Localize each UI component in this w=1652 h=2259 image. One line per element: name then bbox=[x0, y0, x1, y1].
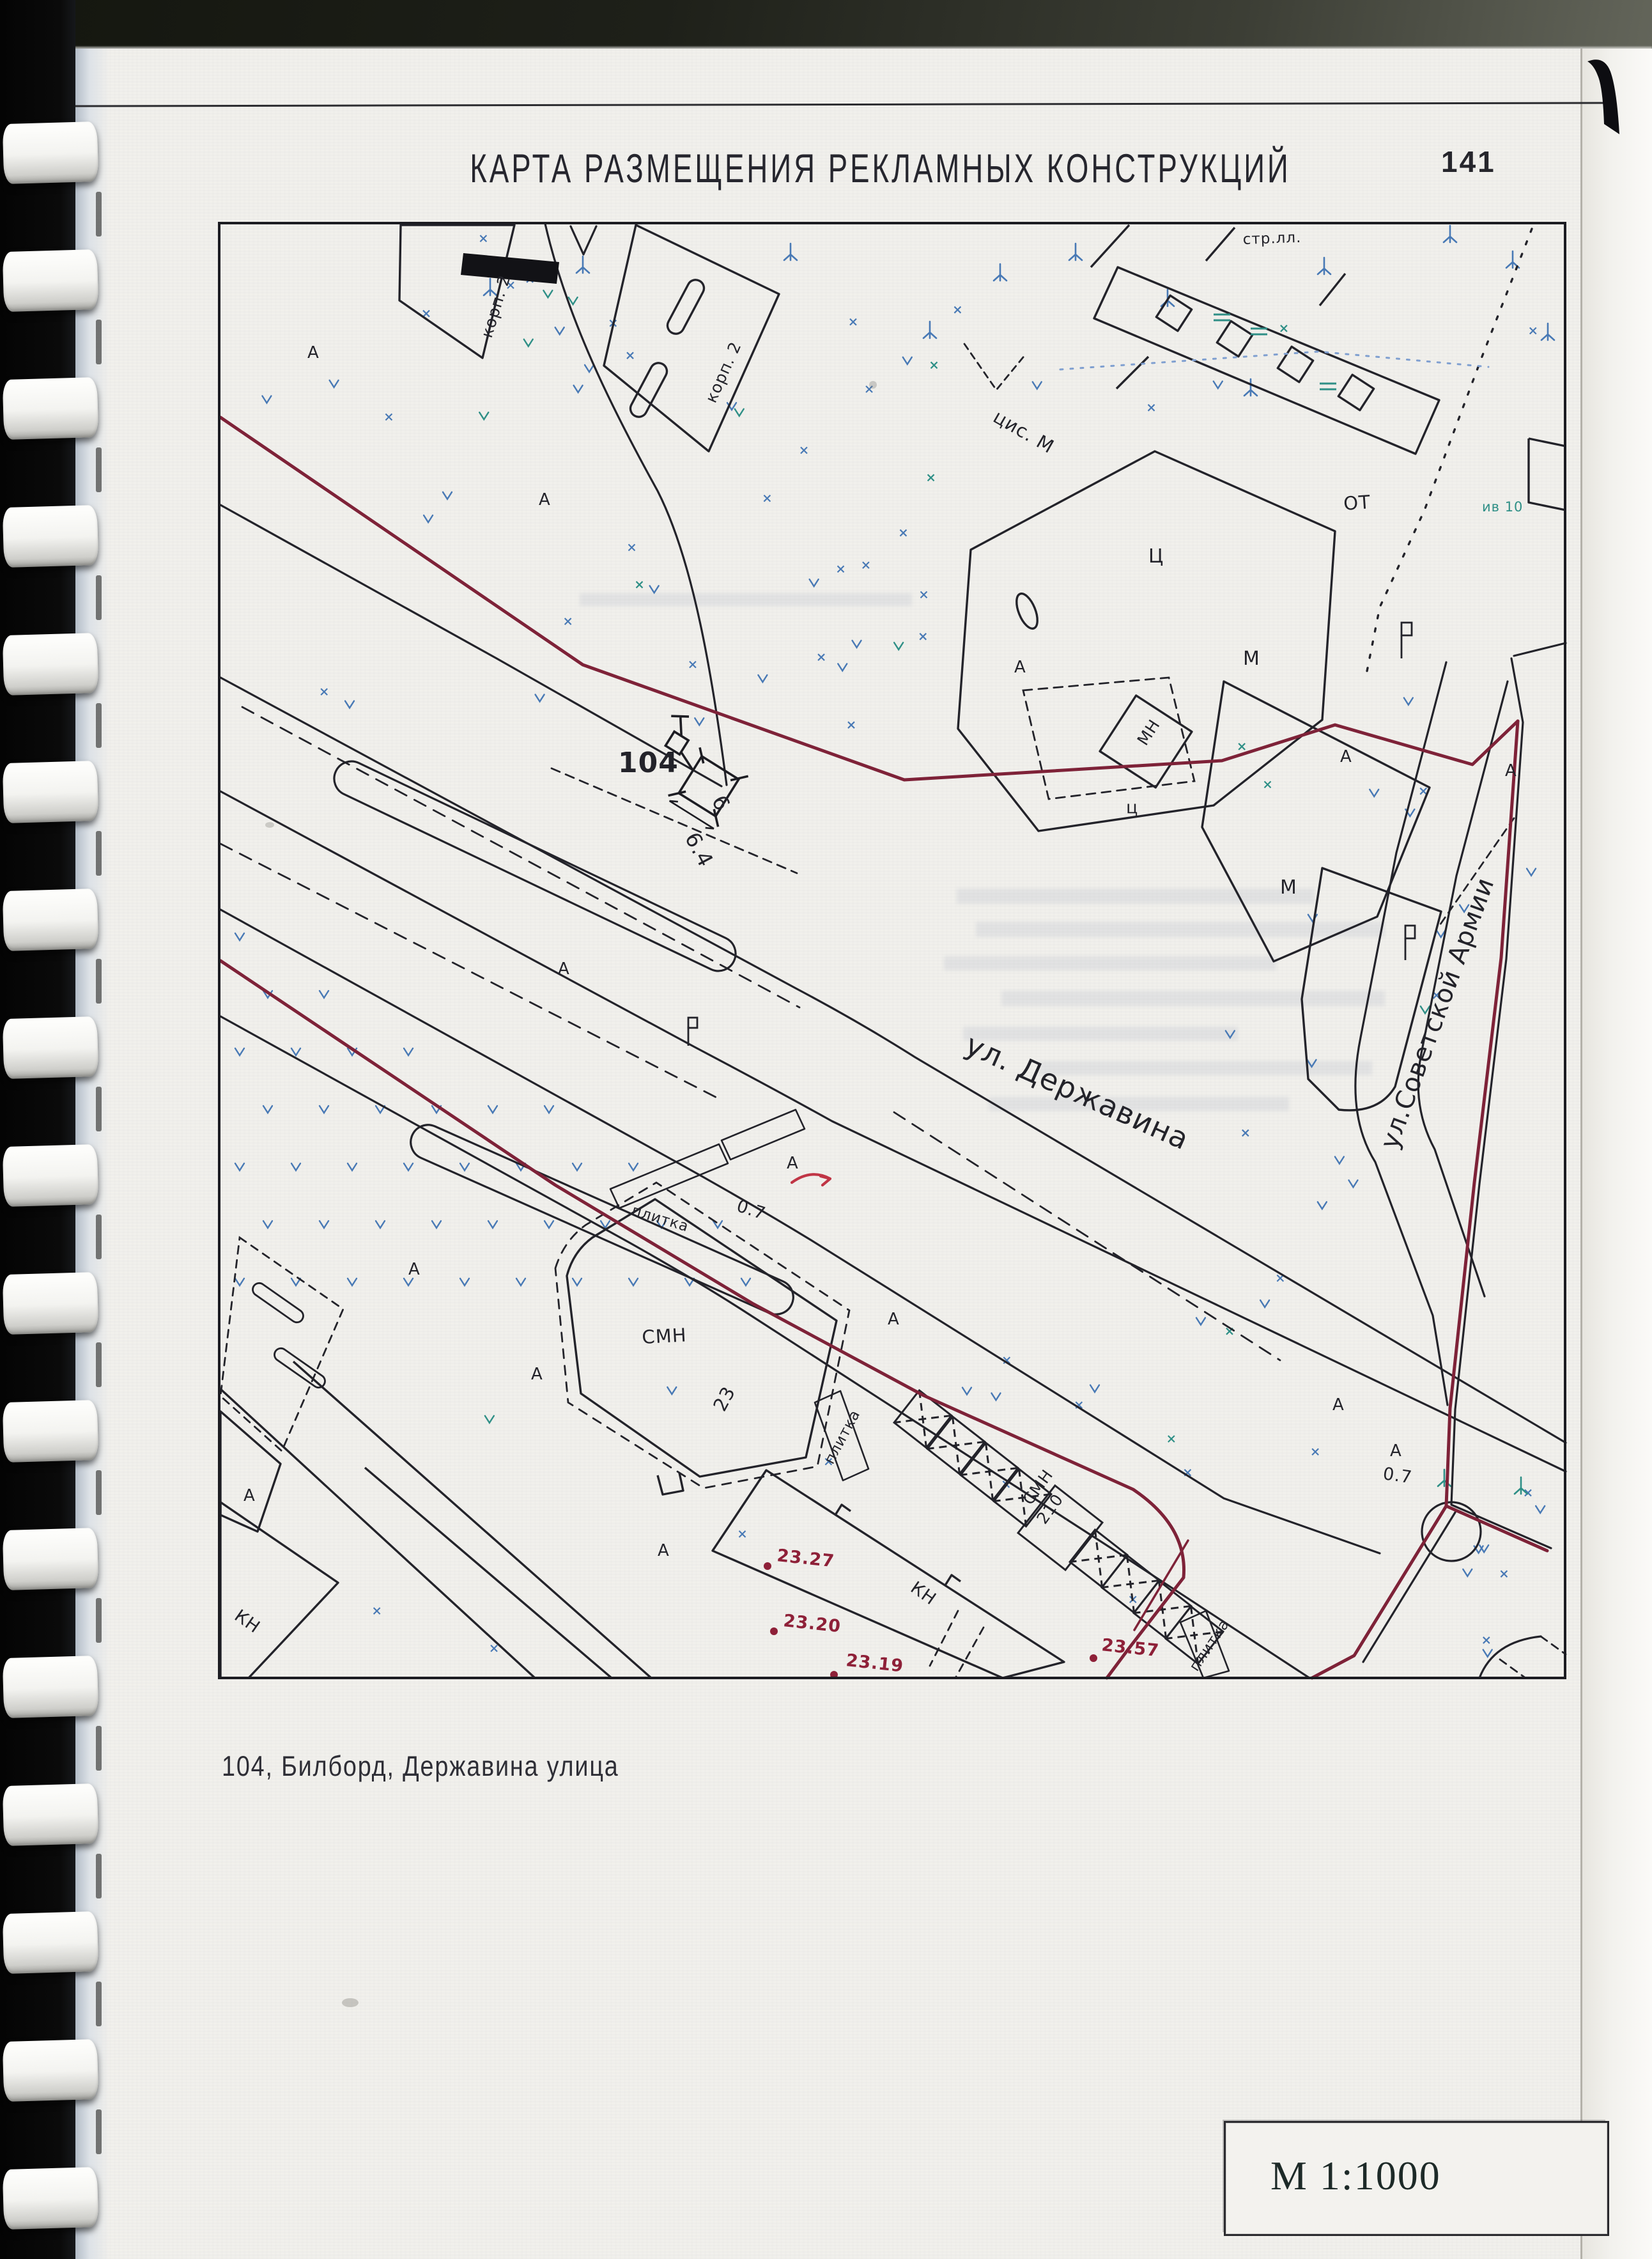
building-label: ц bbox=[1126, 798, 1138, 818]
tree-symbol bbox=[994, 264, 1007, 281]
grass-symbol bbox=[1090, 1385, 1099, 1392]
binding-hole-shadow bbox=[96, 1470, 102, 1515]
binding-hole-shadow bbox=[96, 575, 102, 620]
zone-label: А bbox=[787, 1154, 799, 1173]
grass-symbol bbox=[962, 1388, 971, 1395]
binding-tooth bbox=[3, 2167, 99, 2230]
grass-symbol bbox=[485, 1416, 494, 1423]
buildings bbox=[220, 225, 1566, 1678]
boundary-maroon-lines bbox=[220, 417, 1547, 1678]
measurement-labels: 23.2723.2023.1923.57 bbox=[764, 1546, 1160, 1679]
building bbox=[220, 1502, 338, 1678]
grass-symbol bbox=[479, 412, 488, 419]
zone-label: А bbox=[1390, 1441, 1402, 1461]
shrub-symbol bbox=[1312, 1448, 1318, 1455]
grass-symbol bbox=[695, 718, 704, 725]
grass-symbol bbox=[838, 664, 847, 671]
road bbox=[220, 505, 722, 786]
grass-symbol bbox=[1479, 1545, 1488, 1552]
building-cell bbox=[1156, 295, 1191, 330]
shrub-symbol bbox=[385, 414, 392, 420]
zone-label: А bbox=[658, 1541, 670, 1560]
shrub-symbol bbox=[866, 386, 872, 392]
shrub-symbol bbox=[480, 235, 486, 242]
scale-box: М 1:1000 bbox=[1224, 2121, 1609, 2236]
grass-symbol bbox=[735, 409, 744, 416]
grass-symbol bbox=[573, 1278, 582, 1285]
page-title: КАРТА РАЗМЕЩЕНИЯ РЕКЛАМНЫХ КОНСТРУКЦИЙ bbox=[394, 146, 1368, 192]
grass-symbol bbox=[320, 1221, 328, 1228]
zone-label: А bbox=[531, 1365, 543, 1384]
surface-label: 0.7 bbox=[734, 1196, 768, 1224]
building-cell bbox=[1217, 321, 1252, 356]
shrub-symbol bbox=[838, 566, 844, 572]
binding-hole-shadow bbox=[96, 831, 102, 876]
scanned-page: КАРТА РАЗМЕЩЕНИЯ РЕКЛАМНЫХ КОНСТРУКЦИЙ 1… bbox=[0, 0, 1652, 2259]
building-slot bbox=[251, 1280, 306, 1324]
street-median bbox=[328, 756, 741, 977]
building-label: М bbox=[1243, 648, 1260, 670]
shrub-symbol bbox=[1501, 1571, 1507, 1577]
measurement-dot bbox=[770, 1627, 778, 1635]
surface-label: 0.7 bbox=[1382, 1464, 1414, 1487]
binding-hole-shadow bbox=[96, 192, 102, 237]
shrub-symbol bbox=[1168, 1436, 1175, 1442]
building-label: МН bbox=[1134, 716, 1164, 749]
building-kn bbox=[713, 1470, 1064, 1678]
binding-tooth bbox=[3, 2039, 99, 2102]
grass-symbol bbox=[348, 1278, 357, 1285]
marker-number: 104 bbox=[618, 747, 679, 779]
measurement-dot bbox=[764, 1562, 771, 1570]
building-label: Ц bbox=[1148, 545, 1164, 568]
grass-symbol bbox=[330, 380, 339, 387]
tree-symbol bbox=[1069, 244, 1082, 260]
surface-label: плитка bbox=[629, 1202, 691, 1236]
shrub-symbol bbox=[423, 311, 429, 317]
binding-tooth bbox=[3, 1016, 99, 1079]
street-derzhavina-edge bbox=[220, 791, 1566, 1471]
dashed-lines bbox=[220, 229, 1566, 1678]
grass-symbol bbox=[1214, 382, 1223, 389]
road bbox=[1514, 643, 1566, 656]
marker-dim: 6.4 bbox=[680, 828, 718, 871]
grass-symbol bbox=[1318, 1202, 1327, 1209]
road bbox=[220, 910, 1380, 1553]
grass-symbol bbox=[404, 1048, 413, 1055]
binding-hole-shadow bbox=[96, 2109, 102, 2154]
walkway bbox=[722, 1110, 805, 1160]
grass-symbol bbox=[488, 1221, 497, 1228]
street-median bbox=[405, 1119, 799, 1320]
marker-dim: 6 bbox=[707, 791, 736, 815]
binding-tooth bbox=[3, 121, 99, 184]
top-note: стр.лл. bbox=[1242, 229, 1302, 248]
binding-tooth bbox=[3, 1144, 99, 1207]
shrub-symbol bbox=[764, 495, 770, 502]
dashed-line bbox=[894, 1112, 1280, 1360]
shrub-symbol bbox=[818, 654, 824, 660]
binding-tooth bbox=[3, 761, 99, 823]
building-label: М bbox=[1280, 876, 1297, 899]
grass-symbol bbox=[263, 1221, 272, 1228]
shrub-symbol bbox=[637, 582, 643, 588]
grass-symbol bbox=[320, 1106, 328, 1113]
building bbox=[1202, 681, 1430, 961]
grass-symbol bbox=[741, 1278, 750, 1285]
binding-tooth bbox=[3, 1272, 99, 1335]
tree-symbol bbox=[1515, 1477, 1527, 1494]
binding-tooth bbox=[3, 633, 99, 695]
building bbox=[220, 1411, 281, 1532]
binding-hole-shadow bbox=[96, 959, 102, 1004]
shrub-symbol bbox=[1242, 1129, 1249, 1136]
building bbox=[1529, 439, 1566, 510]
shrub-symbol bbox=[850, 319, 856, 325]
building-bump bbox=[835, 1505, 961, 1585]
zone-label: А bbox=[1014, 658, 1026, 677]
binding-tooth bbox=[3, 1656, 99, 1718]
grass-symbol bbox=[1033, 382, 1042, 389]
grass-symbol bbox=[1536, 1506, 1545, 1513]
shrub-symbol bbox=[627, 352, 633, 359]
grass-symbol bbox=[629, 1163, 638, 1170]
shrub-symbol bbox=[801, 447, 807, 453]
grass-symbol bbox=[1196, 1318, 1205, 1325]
map-glyph bbox=[927, 1417, 985, 1474]
building-label: 23 bbox=[709, 1383, 739, 1415]
grass-symbol bbox=[376, 1221, 385, 1228]
grass-symbol bbox=[629, 1278, 638, 1285]
shrub-symbol bbox=[931, 362, 938, 368]
binding-hole-shadow bbox=[96, 1982, 102, 2026]
zone-label: А bbox=[243, 1486, 256, 1505]
measurement-label: 23.19 bbox=[845, 1650, 904, 1676]
zone-label: А bbox=[307, 343, 320, 362]
zone-label: А bbox=[1505, 761, 1517, 780]
grass-symbol bbox=[573, 1163, 582, 1170]
shrub-symbol bbox=[690, 662, 696, 668]
map-figure: стр.лл.корп. 2корп. 2цис. МЦцМММНОТив 10… bbox=[217, 221, 1567, 1680]
scanner-background bbox=[0, 0, 1652, 50]
binding-tooth bbox=[3, 889, 99, 951]
zone-label: ив 10 bbox=[1482, 499, 1523, 515]
grass-symbol bbox=[1335, 1157, 1344, 1164]
boundary-line bbox=[1451, 658, 1551, 1548]
grass-symbol bbox=[574, 385, 583, 392]
shrub-symbol bbox=[628, 545, 635, 551]
grass-symbol bbox=[404, 1163, 413, 1170]
flag-symbols bbox=[688, 623, 1415, 1046]
grass-symbol bbox=[404, 1278, 413, 1285]
grass-symbol bbox=[543, 290, 552, 297]
tree-symbol bbox=[1444, 226, 1456, 242]
maroon-boundary bbox=[1446, 1506, 1547, 1551]
tree-symbol bbox=[1541, 323, 1554, 340]
binding-hole-shadow bbox=[96, 447, 102, 492]
map-glyph bbox=[1070, 1530, 1127, 1587]
tree-symbol bbox=[1318, 258, 1331, 274]
grass-symbol bbox=[235, 933, 244, 940]
binding-tooth bbox=[3, 1911, 99, 1974]
zone-label: А bbox=[558, 959, 570, 979]
scan-speck bbox=[342, 1998, 359, 2007]
grass-symbol bbox=[262, 396, 271, 403]
measurement-label: 23.20 bbox=[782, 1611, 842, 1636]
grass-symbol bbox=[650, 586, 659, 593]
grass-symbol bbox=[291, 1048, 300, 1055]
binding-tooth bbox=[3, 249, 99, 312]
hatched-cell bbox=[961, 1443, 1018, 1500]
tree-symbol bbox=[784, 244, 797, 260]
grass-symbol bbox=[810, 579, 819, 586]
shrub-symbol bbox=[928, 474, 934, 481]
dashed-outline bbox=[555, 1183, 849, 1488]
shrub-symbol bbox=[1420, 788, 1426, 795]
grass-symbol bbox=[424, 515, 433, 522]
map-frame bbox=[219, 223, 1565, 1678]
binding-hole-shadow bbox=[96, 1726, 102, 1771]
dashed-line bbox=[552, 768, 797, 873]
grass-symbol bbox=[544, 1221, 553, 1228]
grass-symbol bbox=[536, 695, 544, 702]
pen-check-mark bbox=[1572, 56, 1630, 152]
building-slot bbox=[665, 277, 707, 336]
binding-tooth bbox=[3, 1783, 99, 1846]
document-page: КАРТА РАЗМЕЩЕНИЯ РЕКЛАМНЫХ КОНСТРУКЦИЙ 1… bbox=[73, 49, 1652, 2259]
building-label: корп. 2 bbox=[702, 339, 745, 405]
grass-symbol bbox=[667, 1387, 676, 1394]
binding-hole-shadow bbox=[96, 1342, 102, 1387]
zone-label: А bbox=[1340, 747, 1352, 766]
maroon-boundary bbox=[1134, 1541, 1188, 1630]
grass-symbol bbox=[263, 1106, 272, 1113]
shrub-symbol bbox=[921, 591, 927, 598]
zone-label: А bbox=[888, 1310, 900, 1329]
binding-hole-shadow bbox=[96, 703, 102, 748]
grass-symbol bbox=[894, 642, 903, 649]
zone-label: А bbox=[539, 490, 551, 509]
page-edge-line bbox=[1580, 49, 1582, 2259]
grass-symbol bbox=[1348, 1180, 1357, 1187]
previous-page-edge-rule bbox=[73, 102, 1607, 107]
map-labels: стр.лл.корп. 2корп. 2цис. МЦцМММНОТив 10… bbox=[231, 229, 1523, 1675]
grass-symbol bbox=[555, 327, 564, 334]
binding-hole-shadow bbox=[96, 1598, 102, 1643]
grass-symbol bbox=[758, 675, 767, 682]
grass-symbol bbox=[432, 1221, 441, 1228]
arrow-mark bbox=[571, 226, 596, 254]
grass-symbol bbox=[1260, 1300, 1269, 1307]
building-cell bbox=[1338, 375, 1373, 410]
shrub-symbol bbox=[1265, 781, 1271, 788]
dashed-outline bbox=[220, 1238, 343, 1451]
shrub-symbol bbox=[954, 307, 961, 313]
shrub-symbol bbox=[900, 530, 906, 536]
shrub-symbol bbox=[920, 633, 926, 640]
grass-symbol bbox=[991, 1393, 1000, 1400]
grass-symbol bbox=[544, 1106, 553, 1113]
zone-label: А bbox=[1332, 1395, 1345, 1415]
grass-symbol bbox=[460, 1278, 469, 1285]
grass-symbol bbox=[516, 1278, 525, 1285]
hatched-buildings bbox=[894, 1390, 1223, 1664]
map-glyph bbox=[961, 1443, 1018, 1500]
dashed-v bbox=[964, 344, 1026, 390]
shrub-symbol bbox=[848, 722, 854, 728]
grass-symbol bbox=[235, 1048, 244, 1055]
boundary-line bbox=[1363, 1512, 1455, 1662]
shrub-symbol bbox=[1148, 405, 1155, 411]
grass-symbol bbox=[443, 492, 452, 499]
page-right-edge bbox=[1582, 49, 1652, 2259]
page-number: 141 bbox=[1441, 144, 1496, 179]
maroon-boundary bbox=[1312, 1506, 1446, 1678]
zone-label: А bbox=[408, 1260, 421, 1279]
grass-symbol bbox=[853, 640, 861, 648]
grass-symbol bbox=[235, 1278, 244, 1285]
measurement-dot bbox=[1090, 1654, 1097, 1662]
building-label: корп. 2 bbox=[477, 272, 514, 339]
dashed-line bbox=[220, 844, 723, 1101]
grass-symbol bbox=[488, 1106, 497, 1113]
grass-symbol bbox=[291, 1163, 300, 1170]
building-label: СМН bbox=[642, 1324, 688, 1348]
binding-tooth bbox=[3, 1400, 99, 1463]
binding-hole-shadow bbox=[96, 1215, 102, 1259]
road-lines bbox=[220, 224, 1566, 1678]
dashed-line bbox=[1500, 1636, 1566, 1678]
building-label: цис. М bbox=[990, 406, 1058, 458]
red-arrow bbox=[792, 1174, 830, 1185]
binding-tooth bbox=[3, 1528, 99, 1590]
grass-symbol bbox=[235, 1163, 244, 1170]
map-caption: 104, Билборд, Державина улица bbox=[222, 1750, 619, 1782]
hatched-cell bbox=[1070, 1530, 1127, 1587]
grass-symbol bbox=[345, 701, 354, 708]
building-bump bbox=[658, 1473, 683, 1494]
grass-symbol bbox=[585, 365, 594, 372]
grass-symbol bbox=[1483, 1650, 1492, 1657]
shrub-symbol bbox=[1530, 328, 1536, 334]
grass-symbol bbox=[524, 339, 533, 346]
building bbox=[604, 225, 779, 451]
walkway bbox=[610, 1144, 728, 1208]
grass-symbol bbox=[320, 991, 328, 998]
dotted-boundary bbox=[1366, 229, 1532, 678]
road bbox=[220, 1362, 651, 1678]
shrub-symbol bbox=[863, 562, 869, 568]
shrub-symbol bbox=[374, 1608, 380, 1614]
shrub-symbol bbox=[1239, 743, 1245, 750]
grass-symbol bbox=[1463, 1569, 1472, 1576]
building-label: КН bbox=[231, 1606, 264, 1637]
shrub-symbol bbox=[565, 618, 571, 625]
measurement-label: 23.57 bbox=[1100, 1635, 1160, 1661]
shrub-symbol bbox=[739, 1531, 746, 1537]
binding-hole-shadow bbox=[96, 1854, 102, 1898]
dashed-blue-line bbox=[1060, 352, 1488, 369]
binding-tooth bbox=[3, 377, 99, 440]
grass-symbol bbox=[460, 1163, 469, 1170]
grass-symbol bbox=[1527, 869, 1536, 876]
grass-symbol bbox=[1370, 789, 1378, 796]
grass-symbol bbox=[348, 1163, 357, 1170]
street-label-derzhavina: ул. Державина bbox=[961, 1027, 1195, 1157]
dashed-line bbox=[930, 1611, 984, 1678]
shrub-symbol bbox=[1483, 1637, 1490, 1643]
binding-tooth bbox=[3, 505, 99, 568]
measurement-label: 23.27 bbox=[776, 1546, 835, 1571]
vegetation-symbols bbox=[235, 226, 1554, 1657]
building bbox=[1091, 225, 1129, 267]
scale-label: М 1:1000 bbox=[1270, 2152, 1607, 2200]
building-label: КН bbox=[907, 1578, 940, 1609]
grass-symbol bbox=[903, 357, 912, 364]
shrub-symbol bbox=[321, 688, 327, 695]
tree-symbol bbox=[923, 322, 936, 338]
binding-hole-shadow bbox=[96, 320, 102, 364]
shrub-symbol bbox=[1281, 325, 1287, 332]
building-detail bbox=[1012, 591, 1042, 632]
binding-hole-shadow bbox=[96, 1087, 102, 1131]
grass-symbol bbox=[1404, 698, 1413, 705]
shrub-symbol bbox=[491, 1645, 497, 1652]
zone-label: ОТ bbox=[1343, 491, 1371, 515]
tree-symbol bbox=[576, 256, 589, 273]
hatched-cell bbox=[927, 1417, 985, 1474]
